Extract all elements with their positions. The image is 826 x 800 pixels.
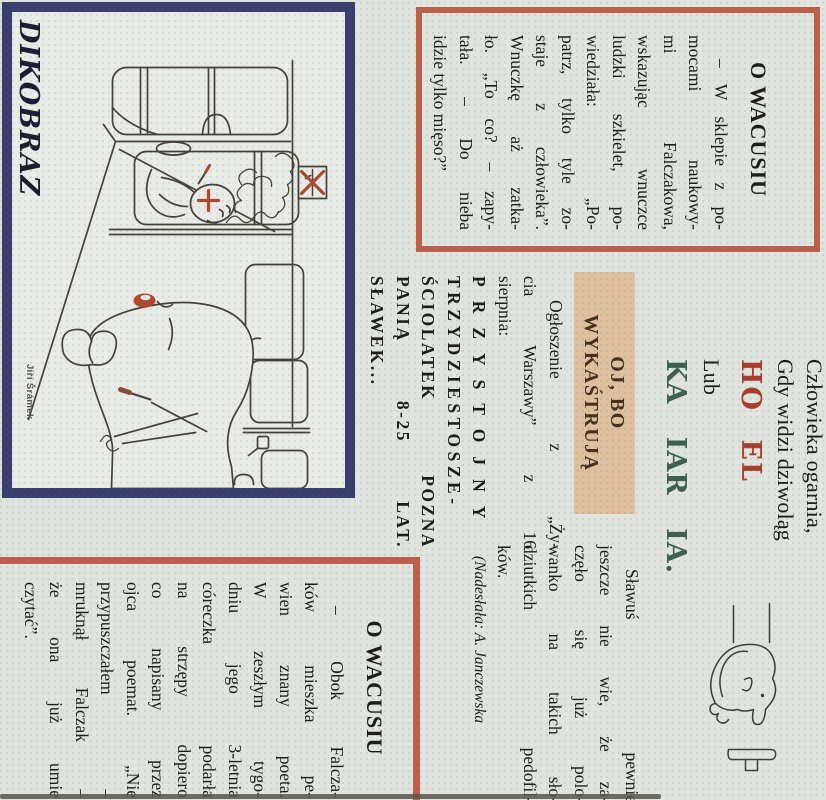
text-line: wskazując wnuczce xyxy=(631,35,657,230)
text-line: dziutkich pedofil- xyxy=(517,545,543,800)
text-line: TRZYDZIESTOSZE- xyxy=(441,276,467,549)
article-box-wacusiu-1: O WACUSIU – W sklepie z po- mocami nauko… xyxy=(416,7,820,252)
article2-column: – Obok Falcza- ków mieszka pe- wien znan… xyxy=(18,564,350,800)
text-line: częło się już polo- xyxy=(568,545,594,800)
cartoonist-signature: Jiří Šrámek xyxy=(24,364,35,420)
article2-title: O WACUSIU xyxy=(362,564,386,800)
text-line: czytać”. xyxy=(18,582,44,798)
text-line: idzie tylko mięso?” xyxy=(427,35,453,230)
text-line: – W sklepie z po- xyxy=(708,35,734,230)
text-line: przypuszczałem – xyxy=(94,582,120,798)
text-line: – Obok Falcza- xyxy=(324,582,350,798)
text-line: PANIĄ 8-25 LAT. xyxy=(390,276,416,549)
text-line: ło. „To co? – zapy- xyxy=(478,35,504,230)
text-line: na strzępy dopiero xyxy=(171,582,197,798)
text-line: W zeszłym tygo- xyxy=(247,582,273,798)
dikobraz-masthead: DIKOBRAZ xyxy=(13,20,44,196)
ad-paragraph: Ogłoszenie z „Ży- cia Warszawy” z 16 sie… xyxy=(364,276,568,549)
riddle-line: Człowieka ogarnia, xyxy=(800,359,826,577)
article1-column: – W sklepie z po- mocami naukowy- mi Fal… xyxy=(427,13,733,246)
scan-edge xyxy=(0,794,661,799)
text-line: mi Falczakowa, xyxy=(657,35,683,230)
article-box-wacusiu-2: O WACUSIU – Obok Falcza- ków mieszka pe-… xyxy=(0,557,420,800)
riddle-word-green: KA IAR IA. xyxy=(660,359,690,577)
text-line: Ogłoszenie z „Ży- xyxy=(543,276,569,549)
cartoon-drawing xyxy=(12,12,345,488)
text-line: Sławuś pewnie xyxy=(619,545,645,800)
text-line: staje z człowieka”. xyxy=(529,35,555,230)
text-line: wanko na takich sło- xyxy=(542,545,568,800)
text-line: że ona już umie xyxy=(43,582,69,798)
text-line: jeszcze nie wie, że za- xyxy=(593,545,619,800)
text-line: cia Warszawy” z 16 xyxy=(517,276,543,549)
magazine-scan: O WACUSIU – W sklepie z po- mocami nauko… xyxy=(0,0,826,800)
riddle-block: Człowieka ogarnia, Gdy widzi dziwoląg HO… xyxy=(660,359,826,577)
text-line: ludzki szkielet, po- xyxy=(606,35,632,230)
ad-heading-line: OJ, BO xyxy=(604,272,630,514)
riddle-word-red: HO EL xyxy=(735,359,765,577)
text-line: wien znany poeta. xyxy=(273,582,299,798)
rotated-page: O WACUSIU – W sklepie z po- mocami nauko… xyxy=(0,0,826,800)
riddle-line: Gdy widzi dziwoląg xyxy=(771,359,800,577)
ad-heading-line: WYKAŚTRUJĄ xyxy=(578,272,604,514)
text-line: co napisany przez xyxy=(145,582,171,798)
article1-title: O WACUSIU xyxy=(746,13,770,246)
text-line: dniu jego 3-letnia xyxy=(222,582,248,798)
text-line: córeczka podarła xyxy=(196,582,222,798)
text-line: ków. xyxy=(491,545,517,800)
riddle-line: Lub xyxy=(697,359,726,577)
text-line: mocami naukowy- xyxy=(682,35,708,230)
text-line: patrz, tylko tyle zo- xyxy=(555,35,581,230)
credit-line: (Nadesłała: A. Janczewska xyxy=(470,556,488,723)
text-line: ojca poemat. „Nie xyxy=(120,582,146,798)
text-line: SŁAWEK... xyxy=(364,276,390,549)
text-line: tała. – Do nieba xyxy=(453,35,479,230)
text-line: Wnuczkę aż zatka- xyxy=(504,35,530,230)
slawus-paragraph: Sławuś pewnie jeszcze nie wie, że za- cz… xyxy=(491,545,644,800)
text-line: ków mieszka pe- xyxy=(298,582,324,798)
text-line: mruknął Falczak – xyxy=(69,582,95,798)
ad-heading: OJ, BO WYKAŚTRUJĄ xyxy=(574,272,635,514)
freak-doodle xyxy=(700,598,800,793)
dikobraz-cartoon-box: DIKOBRAZ Jiří Šrámek xyxy=(2,2,355,498)
text-line: wiedziała: „Po- xyxy=(580,35,606,230)
cartoon-rotated-wrap xyxy=(12,12,345,488)
text-line: ŚCIOLATEK POZNA xyxy=(415,276,441,549)
text-line: PRZYSTOJNY xyxy=(466,276,492,549)
text-line: sierpnia: xyxy=(492,276,518,549)
freak-face-drawing xyxy=(700,598,800,793)
